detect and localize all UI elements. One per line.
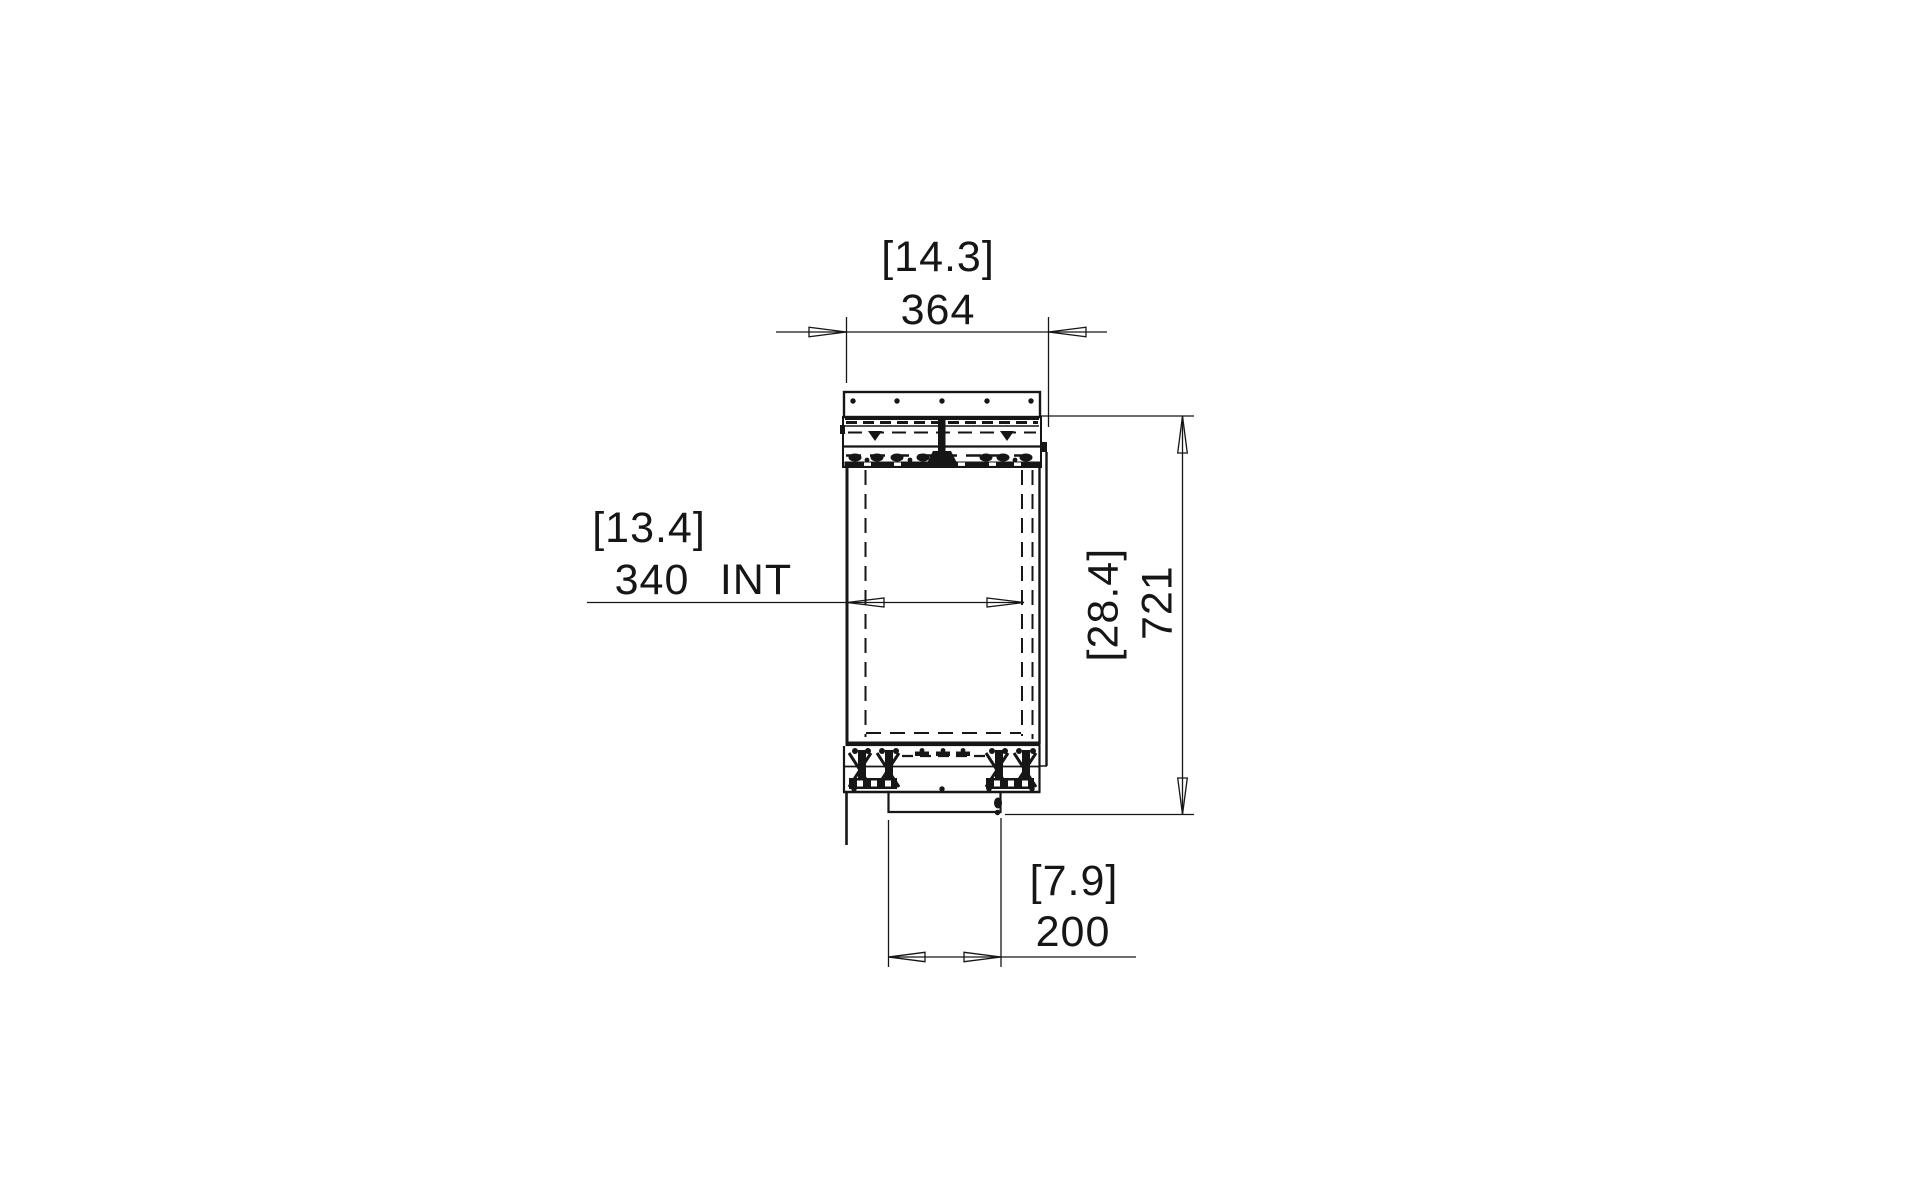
bottom-width-metric-label: 200 xyxy=(973,909,1173,956)
top-width-imperial-label: [14.3] xyxy=(838,234,1038,281)
bottom-width-imperial-label: [7.9] xyxy=(974,858,1174,905)
interior-width-suffix-label: INT xyxy=(701,557,811,604)
burner-tabs xyxy=(915,748,970,756)
mounting-flange xyxy=(844,392,1040,417)
bottom-assembly xyxy=(843,746,1041,792)
interior-width-imperial-label: [13.4] xyxy=(549,505,749,552)
gas-inlet-box xyxy=(889,793,1003,815)
valve-assembly-left xyxy=(849,748,899,789)
overall-height-imperial-label: [28.4] xyxy=(1080,505,1127,705)
fireplace-section-drawing xyxy=(0,0,1920,1187)
top-width-metric-label: 364 xyxy=(838,287,1038,334)
firebox-body xyxy=(846,452,1048,766)
burner-deck xyxy=(840,417,1047,467)
interior-width-metric-label: 340 xyxy=(597,557,707,604)
valve-assembly-right xyxy=(986,748,1036,789)
overall-height-metric-label: 721 xyxy=(1134,503,1181,703)
technical-drawing-page: [14.3] 364 [13.4] 340 INT [28.4] 721 [7.… xyxy=(0,0,1920,1187)
